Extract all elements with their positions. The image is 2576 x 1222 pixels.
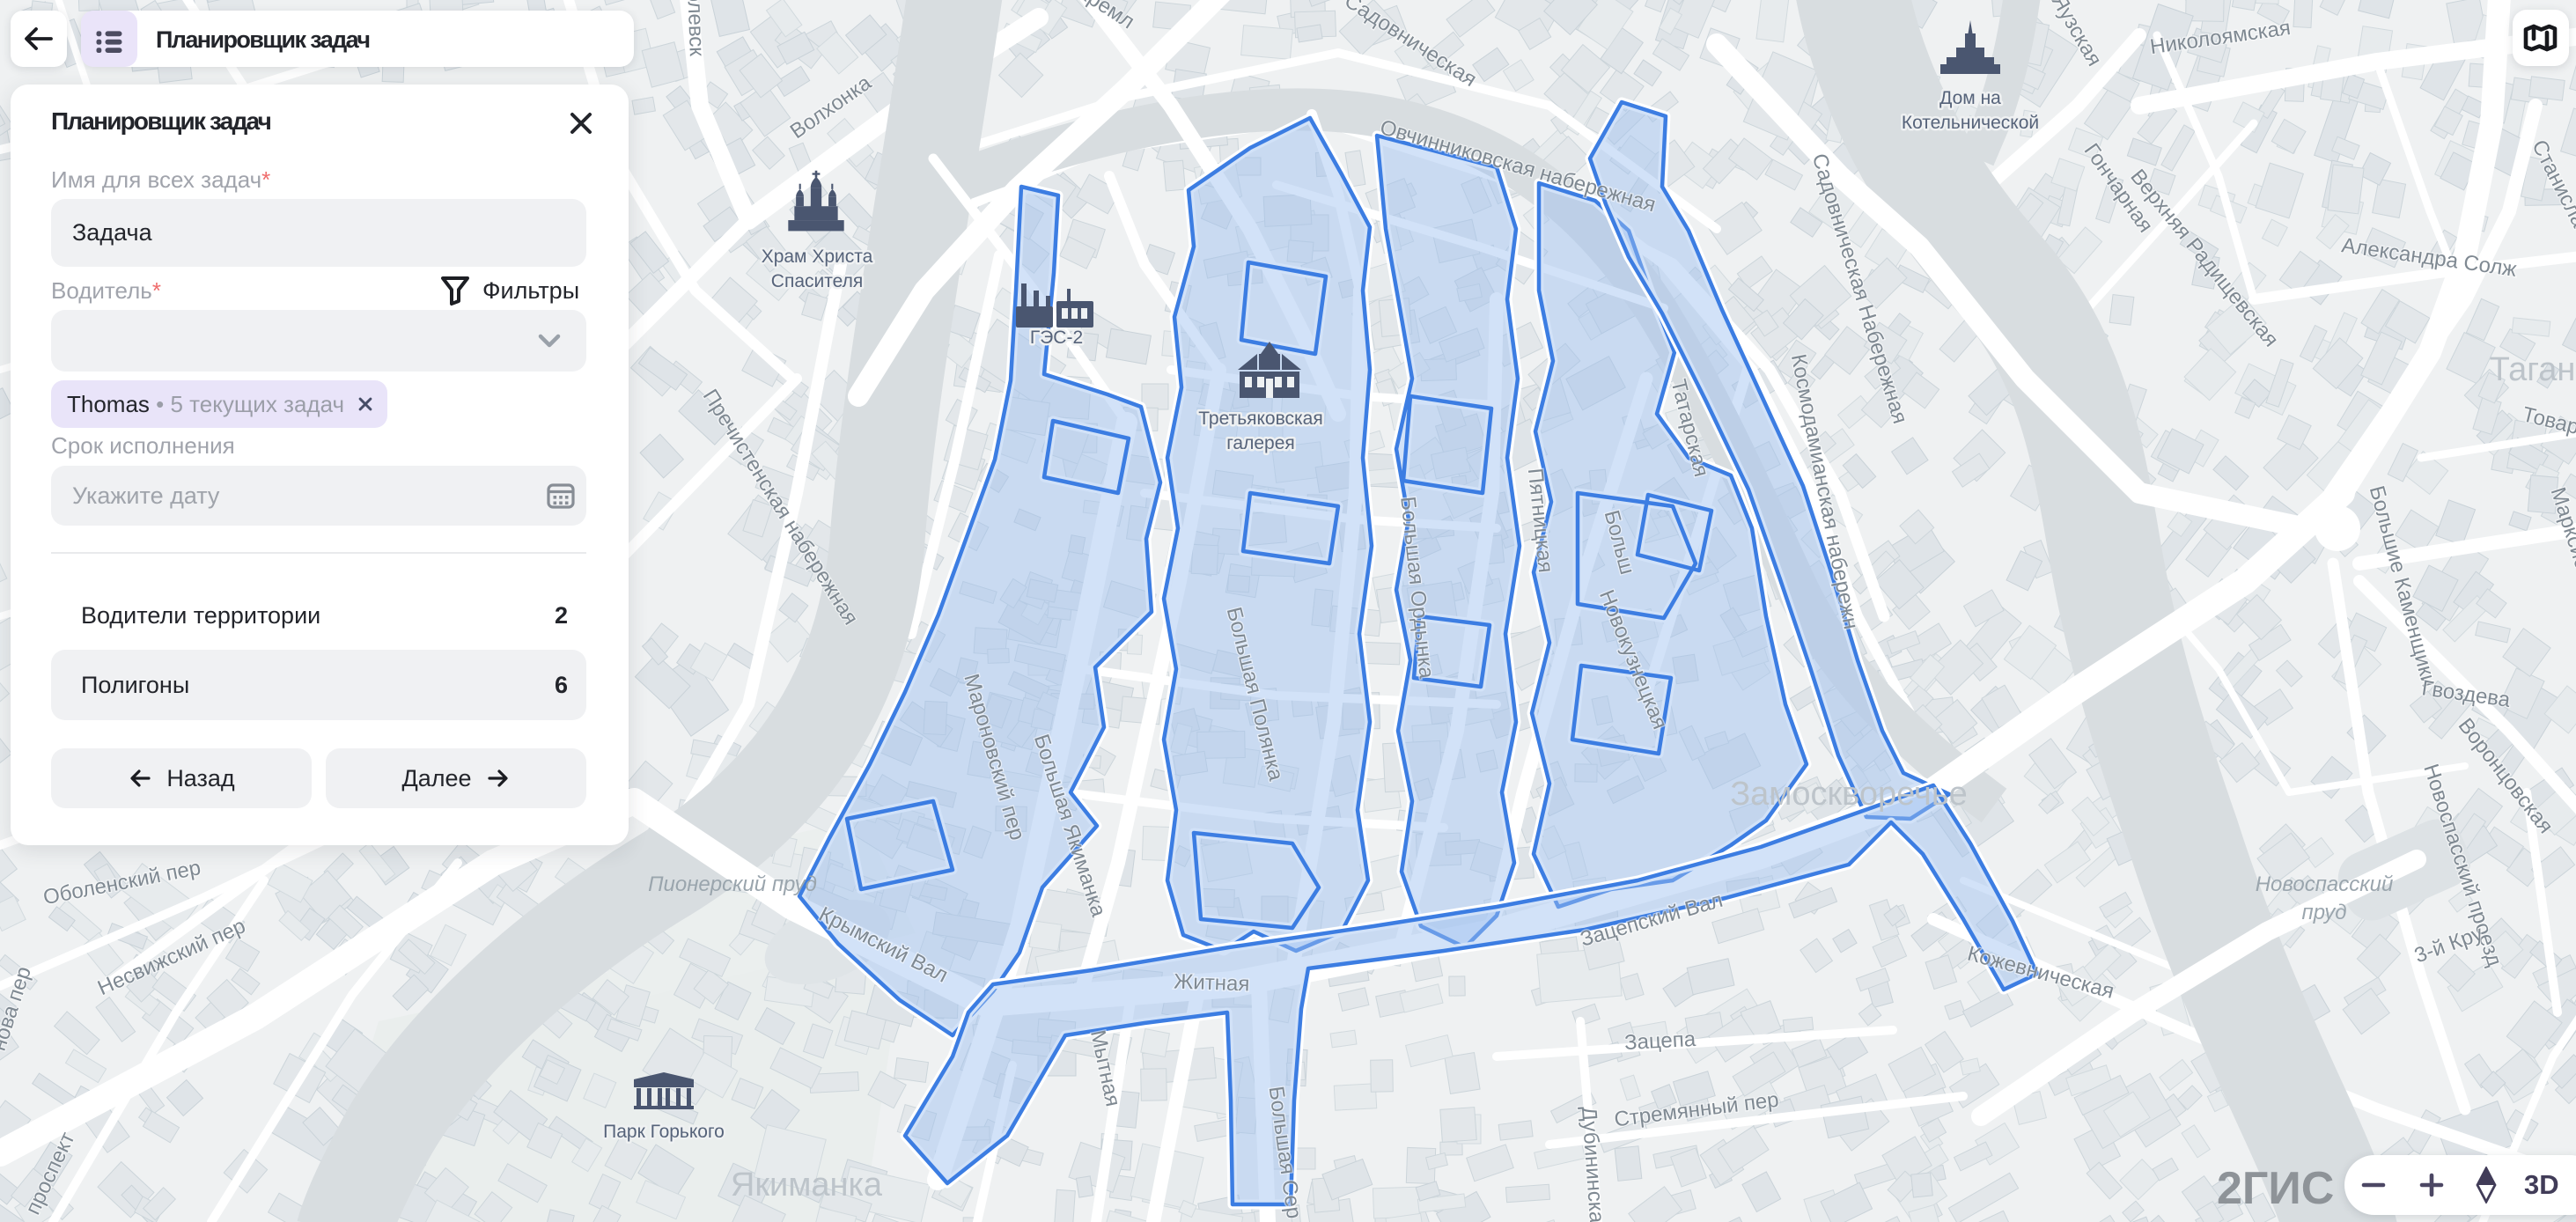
svg-text:Житная: Житная xyxy=(1174,970,1250,997)
svg-text:Новоспасский: Новоспасский xyxy=(2256,872,2394,896)
svg-text:2ГИС: 2ГИС xyxy=(2217,1163,2334,1214)
svg-text:Пионерский пруд: Пионерский пруд xyxy=(648,872,817,896)
svg-text:Гоголевск: Гоголевск xyxy=(681,0,709,57)
svg-text:Парк Горького: Парк Горького xyxy=(603,1122,725,1142)
svg-text:пруд: пруд xyxy=(2301,901,2346,924)
svg-text:Дом на: Дом на xyxy=(1939,88,2001,108)
svg-text:ГЭС-2: ГЭС-2 xyxy=(1030,328,1083,348)
svg-text:Третьяковская: Третьяковская xyxy=(1198,409,1322,429)
svg-text:галерея: галерея xyxy=(1226,433,1295,453)
svg-text:Котельнической: Котельнической xyxy=(1902,113,2039,133)
svg-text:Якиманка: Якиманка xyxy=(731,1167,883,1204)
svg-text:Зацепа: Зацепа xyxy=(1623,1027,1696,1055)
svg-text:Спасителя: Спасителя xyxy=(771,271,863,291)
svg-text:Храм Христа: Храм Христа xyxy=(762,247,873,267)
svg-text:Замоскворечье: Замоскворечье xyxy=(1730,776,1968,813)
svg-text:Таганс: Таганс xyxy=(2490,351,2576,388)
